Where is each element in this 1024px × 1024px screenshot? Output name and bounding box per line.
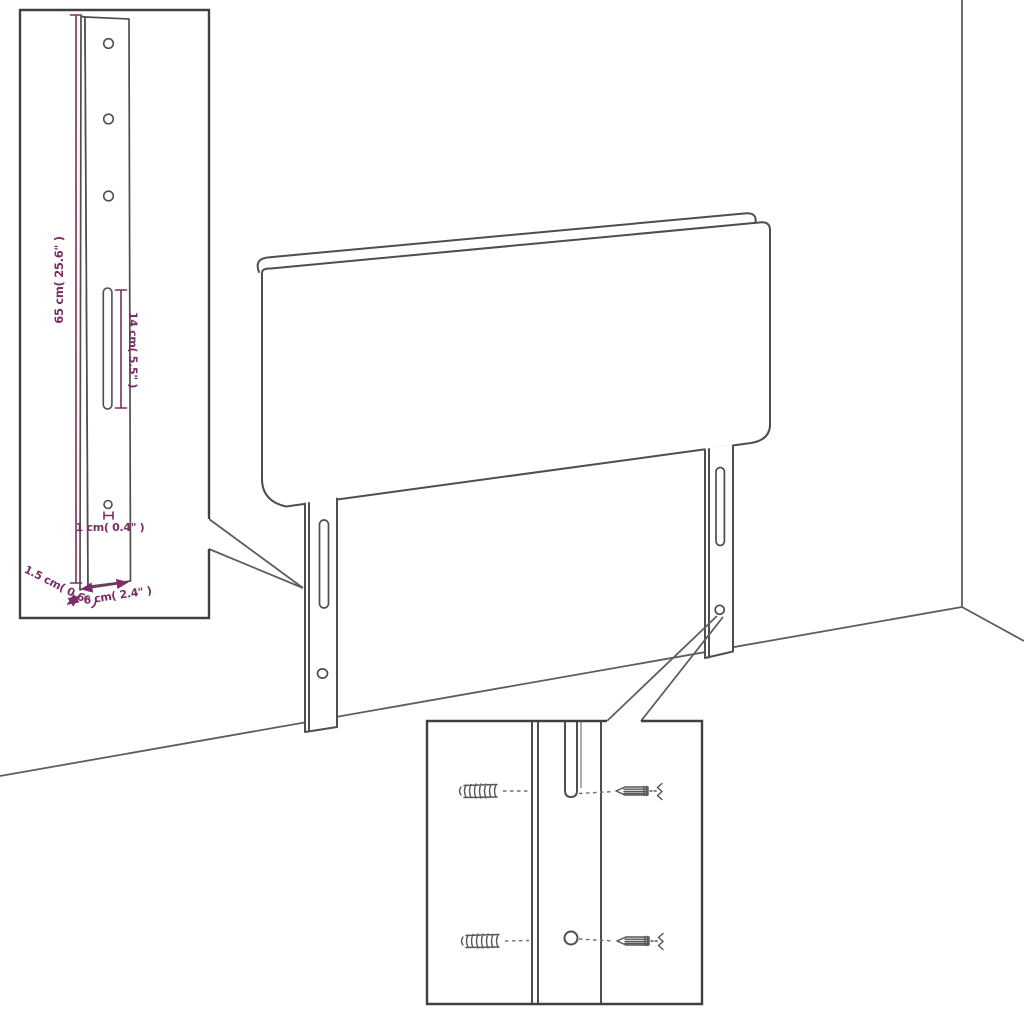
screw-hole <box>565 932 578 945</box>
floor-line-right <box>962 607 1024 641</box>
panel-front-face <box>262 222 770 506</box>
dim-label-hole: 1 cm( 0.4" ) <box>76 521 145 534</box>
dim-label-height: 65 cm( 25.6" ) <box>52 236 66 324</box>
headboard-panel <box>258 213 770 506</box>
headboard-right-leg <box>705 445 733 659</box>
leg-screw-hole <box>318 669 328 678</box>
dim-label-slot: 14 cm( 5.5" ) <box>127 312 140 388</box>
leg-screw-hole <box>715 605 724 614</box>
callout-line <box>607 616 717 721</box>
headboard-left-leg <box>305 497 337 732</box>
callout-line <box>209 519 303 588</box>
inset-mounting-detail <box>427 721 702 1004</box>
inset-leg-detail: 65 cm( 25.6" ) 14 cm( 5.5" ) 1 cm( 0.4" … <box>20 10 209 618</box>
leg-slot <box>320 520 329 608</box>
leg-slot <box>716 468 724 546</box>
headboard-dimension-diagram: 65 cm( 25.6" ) 14 cm( 5.5" ) 1 cm( 0.4" … <box>0 0 1024 1024</box>
callout-wedge-to-left-leg <box>209 519 303 588</box>
callout-line <box>641 617 723 721</box>
callout-line <box>209 549 303 588</box>
